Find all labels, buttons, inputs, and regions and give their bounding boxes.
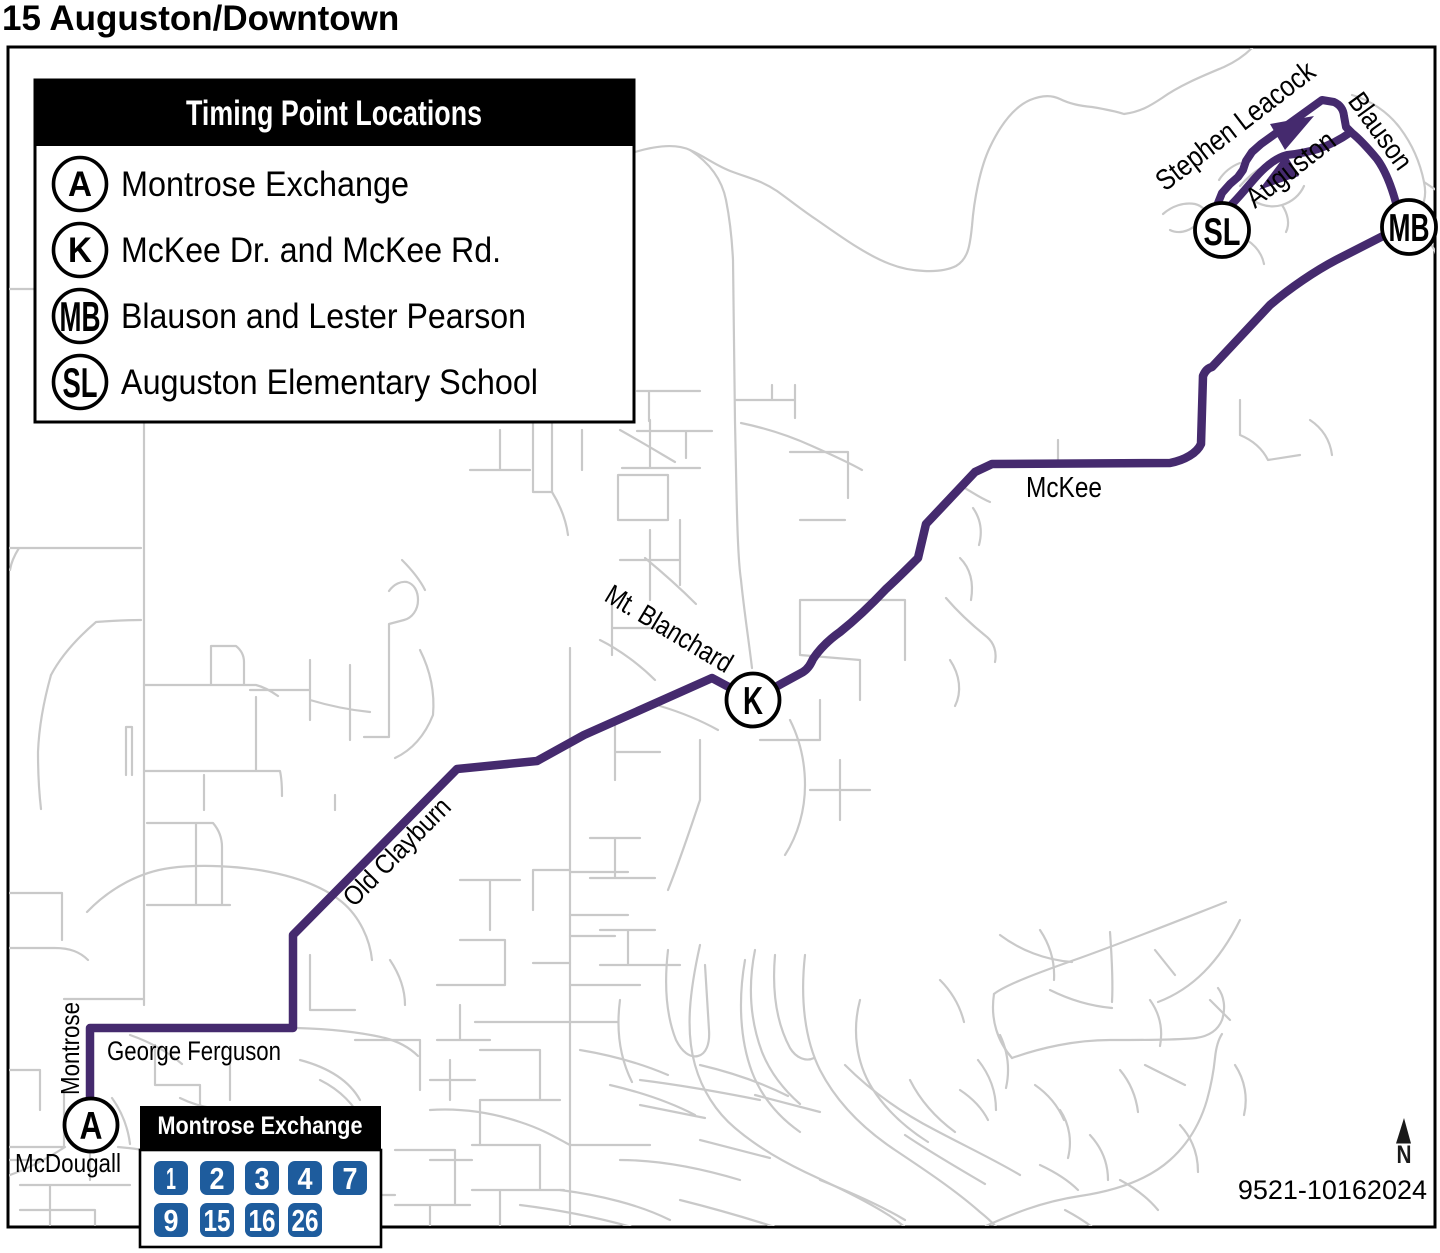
svg-text:3: 3 (255, 1161, 270, 1196)
svg-text:McDougall: McDougall (15, 1148, 121, 1178)
svg-text:4: 4 (298, 1161, 314, 1196)
svg-text:George Ferguson: George Ferguson (107, 1036, 281, 1066)
svg-text:26: 26 (292, 1203, 319, 1238)
svg-text:Auguston Elementary School: Auguston Elementary School (121, 363, 538, 402)
svg-text:McKee Dr. and McKee Rd.: McKee Dr. and McKee Rd. (121, 231, 501, 270)
svg-text:7: 7 (343, 1161, 358, 1196)
svg-text:SL: SL (1204, 211, 1241, 254)
svg-text:MB: MB (1389, 207, 1430, 250)
svg-text:15: 15 (204, 1203, 231, 1238)
svg-text:Montrose Exchange: Montrose Exchange (158, 1112, 363, 1140)
svg-text:9: 9 (164, 1203, 179, 1238)
svg-text:SL: SL (63, 359, 98, 406)
svg-text:Montrose Exchange: Montrose Exchange (121, 165, 409, 204)
svg-text:Blauson and Lester Pearson: Blauson and Lester Pearson (121, 297, 526, 336)
svg-text:9521-10162024: 9521-10162024 (1238, 1175, 1427, 1205)
svg-text:MB: MB (60, 293, 101, 340)
svg-text:2: 2 (210, 1161, 225, 1196)
svg-text:N: N (1397, 1141, 1412, 1169)
svg-text:McKee: McKee (1026, 472, 1102, 504)
svg-text:K: K (68, 231, 92, 270)
svg-text:Timing Point Locations: Timing Point Locations (186, 94, 482, 133)
svg-text:K: K (743, 680, 763, 723)
svg-text:Montrose: Montrose (55, 1002, 85, 1095)
svg-text:A: A (80, 1105, 103, 1148)
svg-text:16: 16 (249, 1203, 276, 1238)
svg-text:A: A (68, 165, 92, 204)
svg-text:1: 1 (166, 1161, 176, 1196)
svg-text:15 Auguston/Downtown: 15 Auguston/Downtown (2, 0, 399, 38)
